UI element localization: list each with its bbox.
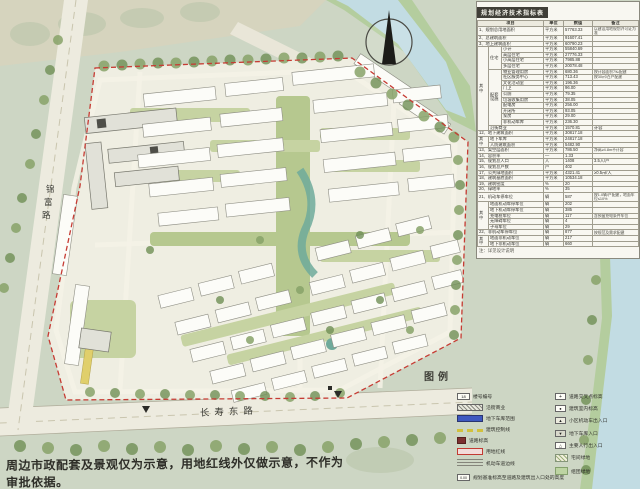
site-plan-canvas: .bld{fill:#fcfcf8;stroke:#8e8e84;stroke-…: [0, 0, 640, 489]
legend-label: 道路交叉点标高: [569, 393, 603, 400]
table-cell: 按1.0辆/户配建，地面车位≤10%: [593, 193, 639, 202]
legend-item: 宅间绿地: [555, 454, 639, 462]
control-line-symbol: [457, 429, 483, 432]
legend-item: ▼地下车库入口: [555, 430, 639, 437]
legend-label: 建筑室内标高: [569, 405, 598, 412]
road-elev-symbol: [457, 437, 466, 444]
legend-item: 用地红线: [457, 448, 551, 455]
legend-label: 小区机动车出入口: [569, 417, 607, 424]
legend-item: +道路交叉点标高: [555, 393, 639, 400]
garage-entry-symbol: ▼: [555, 430, 566, 437]
table-cell: 660: [564, 241, 593, 247]
table-cell: 其中: [478, 136, 489, 147]
table-cell: 配套设施: [489, 69, 502, 125]
house-green-symbol: [555, 454, 568, 462]
indoor-elev-symbol: ●: [555, 405, 566, 412]
indicator-table-grid: 项目单位数值备注1、规划总用地面积平方米57763.33以建设用地规划许可证为准…: [477, 20, 639, 247]
legend-label: 规划基准标高至道路及建筑出入口处的高度: [473, 474, 564, 481]
legend-label: 用地红线: [486, 448, 505, 455]
legend-label: 地下车库范围: [486, 415, 515, 422]
table-cell: 住宅: [489, 47, 502, 69]
table-cell: 其中: [478, 202, 489, 230]
table-cell: 21、机动车停车位: [478, 193, 544, 202]
car-entry-symbol: ▲: [555, 417, 566, 424]
garage-bar-symbol: [457, 415, 483, 422]
legend-item: 建筑控制线: [457, 426, 551, 433]
datum-box-symbol: 0.00: [457, 474, 470, 481]
num-box-symbol: 18: [457, 393, 470, 400]
legend-label: 机动车道边线: [486, 460, 515, 467]
legend-item: ●建筑室内标高: [555, 405, 639, 412]
table-cell: 地下非机动车位: [489, 241, 544, 247]
table-cell: 其中: [478, 47, 489, 131]
legend-label: 宅间绿地: [571, 454, 590, 461]
cross-elev-symbol: +: [555, 393, 566, 400]
legend-label: 地下车库入口: [569, 430, 598, 437]
legend-item: 18楼号编号: [457, 393, 551, 400]
legend-label: 建筑控制线: [486, 426, 510, 433]
legend-label: 道路标高: [469, 437, 488, 444]
commercial-bar-symbol: [457, 404, 483, 411]
indicator-table-body: 项目单位数值备注1、规划总用地面积平方米57763.33以建设用地规划许可证为准…: [478, 21, 639, 247]
legend-right-column: +道路交叉点标高●建筑室内标高▲小区机动车出入口▼地下车库入口△主要人行出入口宅…: [555, 393, 639, 480]
table-cell: 辆: [544, 193, 564, 202]
legend-item: 道路标高: [457, 437, 551, 444]
legend-label: 楼号编号: [473, 393, 492, 400]
legend-item: 地下车库范围: [457, 415, 551, 422]
table-cell: 以建设用地规划许可证为准: [593, 26, 639, 35]
table-cell: 587: [564, 193, 593, 202]
legend-item: 0.00规划基准标高至道路及建筑出入口处的高度: [457, 474, 564, 481]
table-cell: 1、规划总用地面积: [478, 26, 544, 35]
indicator-table-title: 规划经济技术指标表: [477, 7, 548, 18]
table-cell: 其中: [478, 236, 489, 247]
indicator-table-note: 注：详见设计说明: [477, 247, 639, 255]
legend-title: 图例: [424, 368, 452, 383]
legend: 18楼号编号沿街商业地下车库范围建筑控制线道路标高用地红线机动车道边线 +道路交…: [457, 393, 639, 480]
disclaimer-text: 周边市政配套及景观仅为示意，用地红线外仅做示意，不作为审批依据。: [6, 453, 346, 489]
table-cell: 辆: [544, 241, 564, 247]
legend-item: 沿街商业: [457, 404, 551, 411]
table-cell: 平方米: [544, 26, 564, 35]
legend-label: 主要人行出入口: [569, 442, 603, 449]
table-cell: [593, 241, 639, 247]
ped-entry-symbol: △: [555, 442, 566, 449]
legend-item: △主要人行出入口: [555, 442, 639, 449]
indicator-table: 规划经济技术指标表 项目单位数值备注1、规划总用地面积平方米57763.33以建…: [476, 1, 640, 259]
road-label-bottom: 长寿东路: [200, 404, 258, 419]
legend-item: 机动车道边线: [457, 459, 551, 467]
legend-item: ▲小区机动车出入口: [555, 417, 639, 424]
lane-line-symbol: [457, 459, 483, 467]
legend-note-row: 0.00规划基准标高至道路及建筑出入口处的高度: [457, 474, 639, 485]
kindergarten-block: [79, 328, 111, 352]
legend-left-column: 18楼号编号沿街商业地下车库范围建筑控制线道路标高用地红线机动车道边线: [457, 393, 551, 480]
red-line-symbol: [457, 448, 483, 455]
legend-label: 沿街商业: [486, 404, 505, 411]
table-cell: 57763.33: [564, 26, 593, 35]
